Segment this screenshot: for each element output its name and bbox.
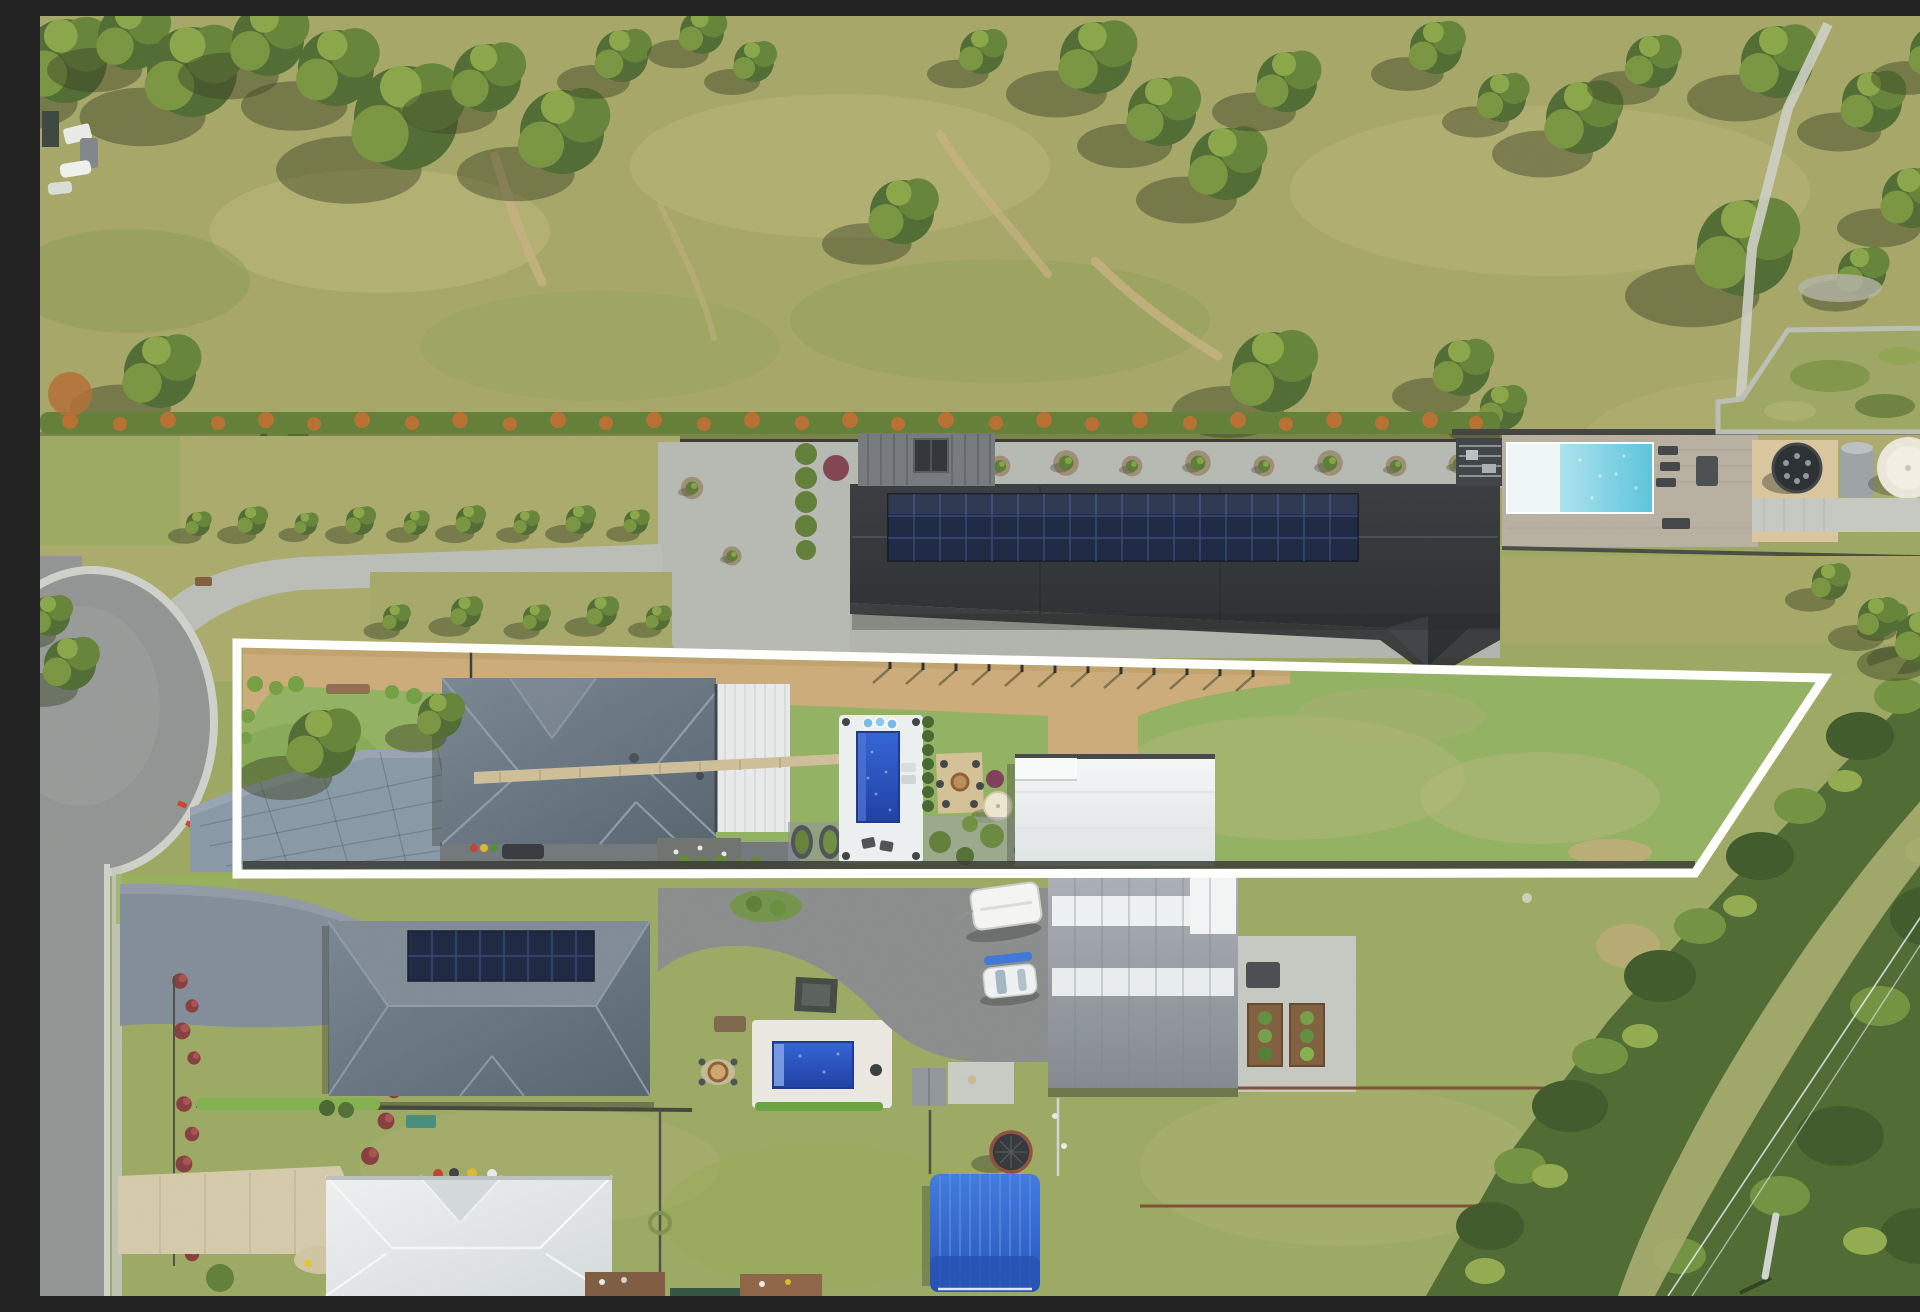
- aerial-photo-canvas: [40, 16, 1920, 1296]
- sunlight-tint: [40, 16, 1920, 1296]
- aerial-photo: [40, 16, 1920, 1296]
